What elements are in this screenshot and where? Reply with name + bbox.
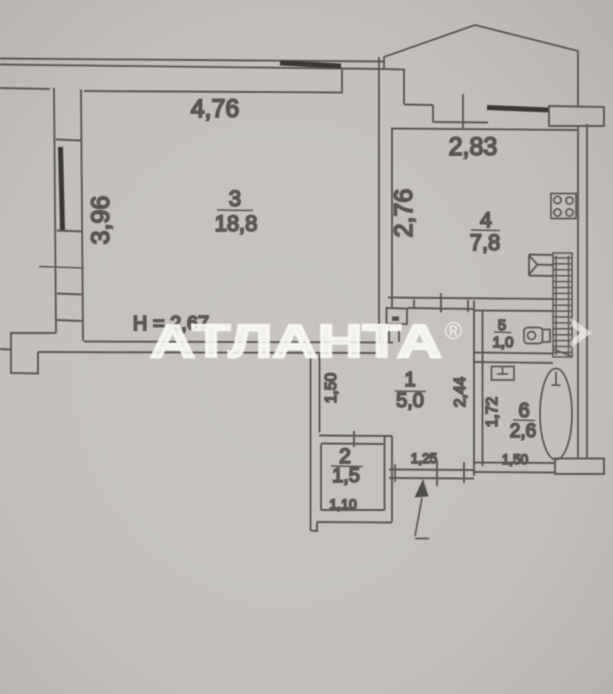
svg-text:1,0: 1,0: [493, 334, 514, 351]
svg-text:1,72: 1,72: [484, 397, 501, 427]
svg-text:5,0: 5,0: [396, 390, 424, 412]
svg-text:1,25: 1,25: [411, 451, 437, 466]
svg-text:3: 3: [229, 186, 241, 211]
svg-text:18,8: 18,8: [215, 211, 258, 236]
svg-text:3,96: 3,96: [87, 196, 115, 245]
svg-text:1,10: 1,10: [329, 496, 356, 512]
svg-text:1,50: 1,50: [323, 373, 340, 404]
svg-text:7,8: 7,8: [470, 230, 501, 255]
svg-text:4,76: 4,76: [191, 95, 240, 123]
svg-text:1: 1: [404, 369, 415, 391]
svg-text:2,6: 2,6: [510, 421, 536, 442]
svg-text:1,50: 1,50: [502, 452, 528, 467]
svg-text:1,5: 1,5: [332, 465, 360, 487]
svg-text:2,83: 2,83: [449, 133, 498, 161]
svg-text:2,44: 2,44: [452, 377, 469, 408]
svg-text:6: 6: [518, 400, 529, 422]
svg-text:®: ®: [445, 318, 463, 345]
svg-text:2,76: 2,76: [390, 189, 418, 238]
svg-text:4: 4: [480, 209, 492, 232]
svg-text:АТЛАНТА: АТЛАНТА: [150, 315, 442, 367]
